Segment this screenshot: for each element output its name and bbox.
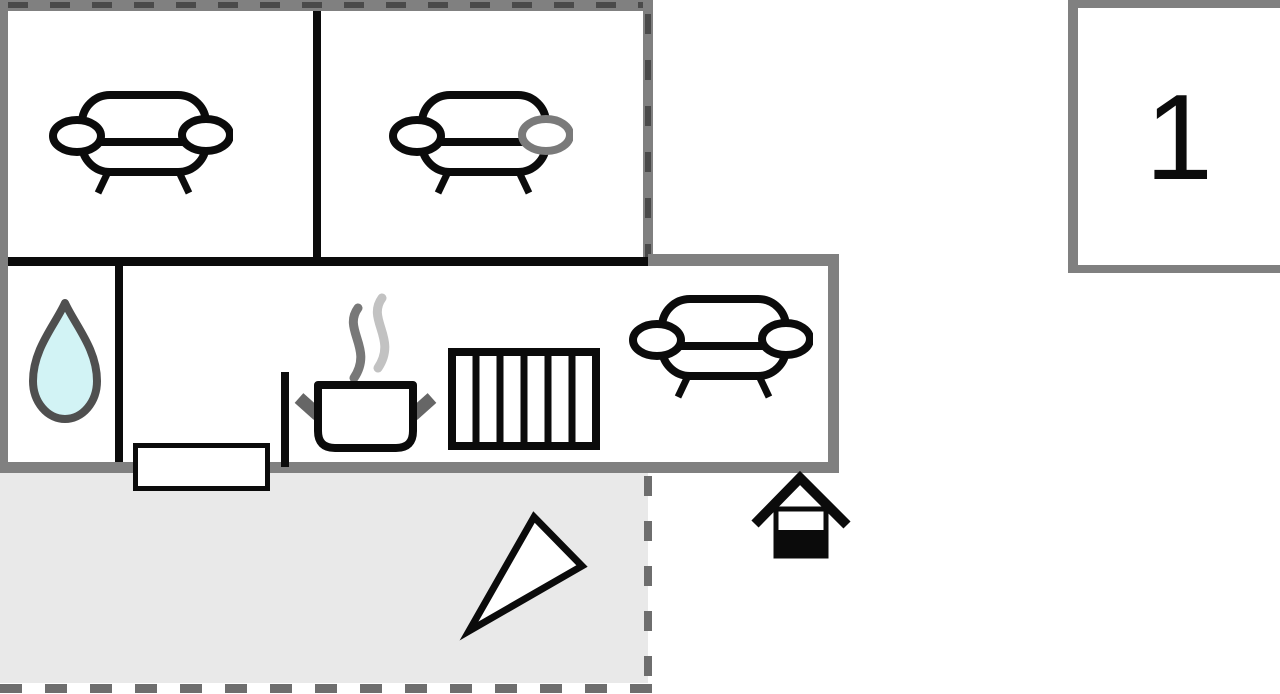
wall-bathroom [115,266,123,462]
terrace-dashed-border-bottom [0,684,652,693]
wall-top-dashes [8,2,644,8]
terrace-dashed-border-right [644,476,652,686]
wall-bedrooms-bottom [8,257,648,266]
sofa-icon [47,85,233,199]
unit-box-wall-top [1068,0,1280,8]
wall-left [0,11,8,473]
water-drop-icon [27,297,103,429]
north-arrow-icon [458,506,594,642]
terrace-door [133,443,270,491]
cooking-pot-icon [290,290,442,454]
wall-right-dashes [645,14,651,262]
sofa-icon [387,85,573,199]
wall-kitchen-partition [281,372,289,467]
steam-icon [377,298,384,368]
radiator-icon [448,348,600,450]
sofa-icon [627,289,813,403]
wall-bottom [0,462,839,473]
floor-plan: 1 [0,0,1280,694]
unit-number-label: 1 [1078,8,1280,265]
unit-box-wall-bottom [1068,265,1280,273]
wall-living-room-right [828,254,839,472]
unit-box-wall-left [1068,0,1078,273]
wall-bedroom-divider [313,11,321,266]
steam-icon [353,308,360,378]
entrance-icon [748,469,853,561]
wall-living-room-top [648,254,838,266]
